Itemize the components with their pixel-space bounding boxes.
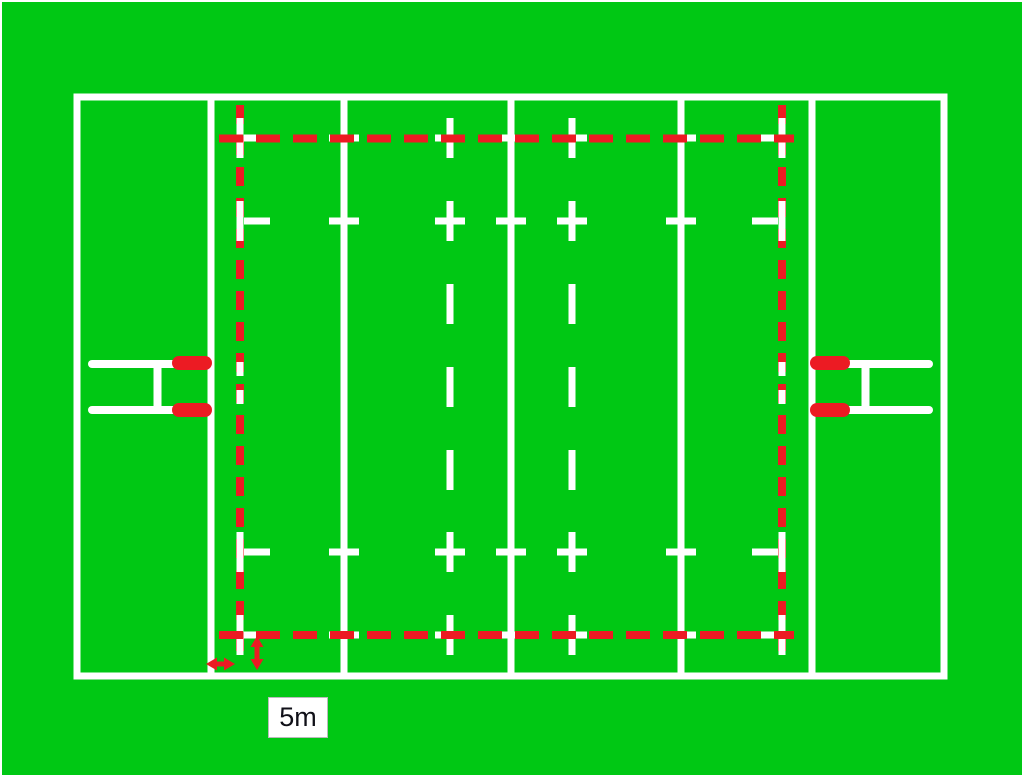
dash-mark [666,218,696,225]
dash-mark [496,218,526,225]
dash-mark [779,390,786,404]
dash-mark [779,532,786,572]
dash [447,284,454,324]
post-pad [810,403,850,417]
five-metre-label-text: 5m [279,704,317,731]
dash-mark [435,218,465,225]
dash-mark [237,362,244,376]
10m-dashed-line-right [569,118,576,655]
rugby-pitch-diagram: 5m [0,0,1024,777]
dash-mark [244,218,270,225]
dash-mark [329,218,359,225]
dash-mark [779,362,786,376]
post-crossbar [862,360,870,414]
post-crossbar [154,360,162,414]
dash-mark [557,218,587,225]
arrow-head-down [251,659,264,670]
dash-mark [329,549,359,556]
goalposts-left [88,356,212,417]
dash [569,284,576,324]
dash-mark [244,549,270,556]
post-pad [172,403,212,417]
dash-mark [237,390,244,404]
arrow-head-right [224,658,235,671]
dash-mark [435,549,465,556]
dash-mark [237,532,244,572]
dash-mark [752,218,778,225]
dash-mark [496,549,526,556]
field-lines [77,94,944,679]
goalposts-right [810,356,933,417]
dash-mark [237,201,244,241]
dash [447,450,454,490]
dash-mark [666,549,696,556]
dash-mark [752,549,778,556]
post-pad [810,356,850,370]
five-metre-label: 5m [268,697,328,738]
five-metre-vertical-arrow [251,636,264,670]
dash-mark [779,201,786,241]
dash [569,367,576,407]
10m-dashed-line-left [447,118,454,655]
post-pad [172,356,212,370]
pitch-plan-svg [0,0,1024,777]
dash [569,450,576,490]
dash-mark [557,549,587,556]
dash [447,367,454,407]
